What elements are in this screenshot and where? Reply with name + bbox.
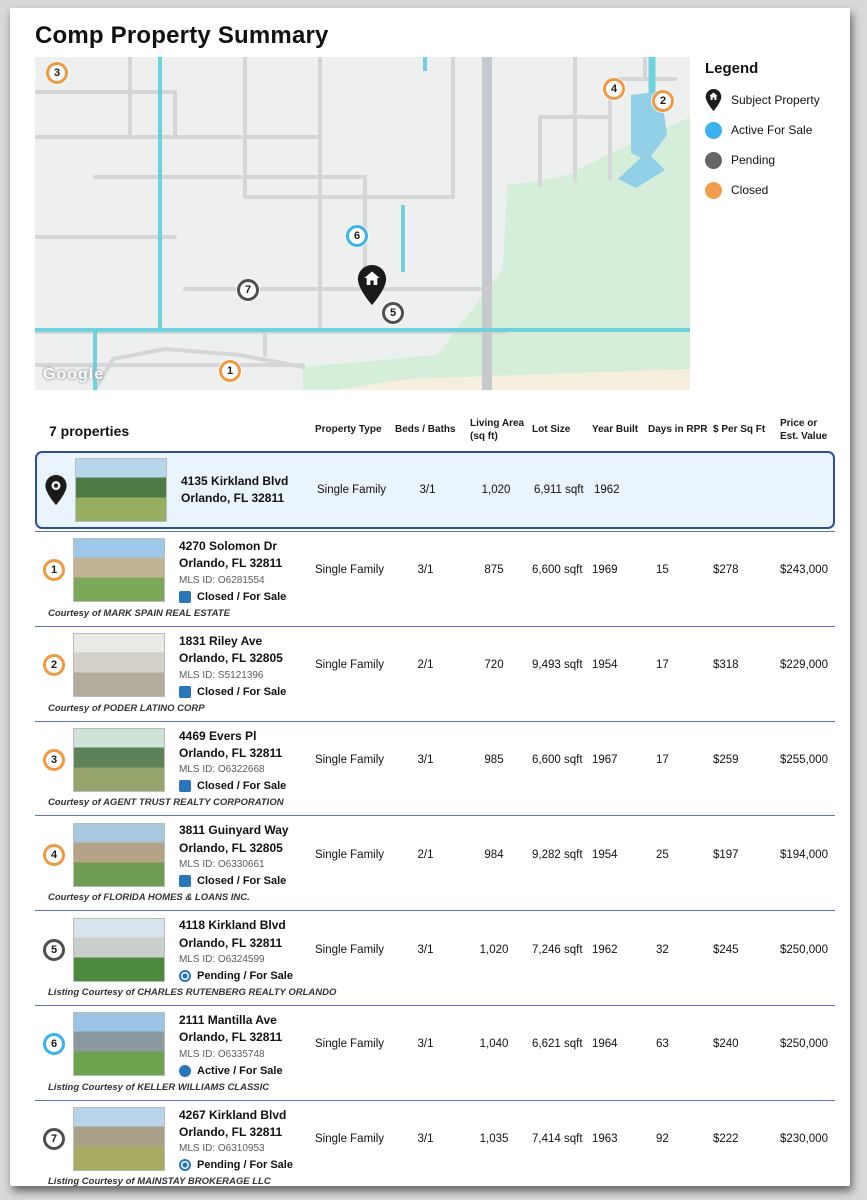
beds-baths: 3/1: [395, 1133, 470, 1145]
courtesy-line: Courtesy of FLORIDA HOMES & LOANS INC.: [35, 887, 835, 906]
courtesy-line: Listing Courtesy of KELLER WILLIAMS CLAS…: [35, 1077, 835, 1096]
mls-id: MLS ID: O6324599: [179, 952, 315, 967]
status-text: Closed / For Sale: [197, 591, 286, 603]
property-address[interactable]: 4118 Kirkland Blvd: [179, 917, 315, 934]
property-photo[interactable]: [73, 633, 165, 697]
days-in-rpr: 17: [648, 659, 713, 671]
column-header: Price orEst. Value: [780, 418, 835, 443]
beds-baths: 2/1: [395, 659, 470, 671]
year-built: 1963: [592, 1133, 648, 1145]
year-built: 1954: [592, 849, 648, 861]
price-per-sqft: $259: [713, 754, 780, 766]
courtesy-line: Courtesy of PODER LATINO CORP: [35, 698, 835, 717]
price-per-sqft: $222: [713, 1133, 780, 1145]
year-built: 1954: [592, 659, 648, 671]
column-header: Days in RPR: [648, 424, 713, 437]
days-in-rpr: 92: [648, 1133, 713, 1145]
map-marker-4[interactable]: 4: [603, 78, 625, 100]
legend-label: Pending: [731, 153, 775, 167]
property-type: Single Family: [317, 484, 397, 496]
beds-baths: 3/1: [395, 944, 470, 956]
price-per-sqft: $245: [713, 944, 780, 956]
price: $250,000: [780, 1038, 835, 1050]
year-built: 1962: [594, 484, 650, 496]
map-marker-6[interactable]: 6: [346, 225, 368, 247]
report-page: Comp Property Summary: [10, 8, 850, 1186]
price-per-sqft: $197: [713, 849, 780, 861]
property-address[interactable]: 1831 Riley Ave: [179, 633, 315, 650]
beds-baths: 3/1: [397, 484, 472, 496]
price: $250,000: [780, 944, 835, 956]
price-per-sqft: $240: [713, 1038, 780, 1050]
map-legend: Legend Subject Property Active For Sale …: [705, 60, 855, 211]
column-header: Living Area(sq ft): [470, 418, 532, 443]
living-area: 1,020: [470, 944, 532, 956]
row-marker: 1: [43, 559, 65, 581]
pending-circle-icon: [705, 152, 722, 169]
price: $229,000: [780, 659, 835, 671]
map-marker-3[interactable]: 3: [46, 62, 68, 84]
subject-property-pin-icon[interactable]: [357, 265, 387, 305]
row-marker: 3: [43, 749, 65, 771]
year-built: 1962: [592, 944, 648, 956]
property-city: Orlando, FL 32811: [179, 1029, 315, 1046]
days-in-rpr: 32: [648, 944, 713, 956]
legend-item-subject: Subject Property: [705, 91, 855, 109]
table-row[interactable]: 3 4469 Evers Pl Orlando, FL 32811 MLS ID…: [35, 721, 835, 816]
column-header: Property Type: [315, 424, 395, 437]
property-city: Orlando, FL 32811: [179, 555, 315, 572]
year-built: 1967: [592, 754, 648, 766]
property-photo[interactable]: [73, 918, 165, 982]
status-text: Closed / For Sale: [197, 875, 286, 887]
mls-id: MLS ID: O6335748: [179, 1047, 315, 1062]
legend-item-closed: Closed: [705, 181, 855, 199]
beds-baths: 3/1: [395, 1038, 470, 1050]
column-header: Lot Size: [532, 424, 592, 437]
status-icon: [179, 875, 191, 887]
legend-label: Active For Sale: [731, 123, 812, 137]
mls-id: MLS ID: O6281554: [179, 573, 315, 588]
lot-size: 6,911 sqft: [534, 484, 594, 496]
property-type: Single Family: [315, 1133, 395, 1145]
status-icon: [179, 1065, 191, 1077]
subject-pin-icon: [705, 89, 722, 111]
days-in-rpr: 15: [648, 564, 713, 576]
property-address[interactable]: 3811 Guinyard Way: [179, 822, 315, 839]
courtesy-line: Courtesy of MARK SPAIN REAL ESTATE: [35, 603, 835, 622]
living-area: 984: [470, 849, 532, 861]
status-icon: [179, 1159, 191, 1171]
lot-size: 6,600 sqft: [532, 754, 592, 766]
map-marker-5[interactable]: 5: [382, 302, 404, 324]
property-address[interactable]: 4267 Kirkland Blvd: [179, 1107, 315, 1124]
price-per-sqft: $318: [713, 659, 780, 671]
living-area: 985: [470, 754, 532, 766]
lot-size: 9,282 sqft: [532, 849, 592, 861]
price-per-sqft: $278: [713, 564, 780, 576]
lot-size: 9,493 sqft: [532, 659, 592, 671]
row-marker: 4: [43, 844, 65, 866]
property-photo[interactable]: [73, 1012, 165, 1076]
legend-item-active: Active For Sale: [705, 121, 855, 139]
property-type: Single Family: [315, 849, 395, 861]
map-marker-2[interactable]: 2: [652, 90, 674, 112]
property-type: Single Family: [315, 754, 395, 766]
google-logo: Google: [43, 366, 104, 384]
subject-property-row[interactable]: 4135 Kirkland Blvd Orlando, FL 32811 Sin…: [35, 451, 835, 529]
row-marker: 2: [43, 654, 65, 676]
column-header: $ Per Sq Ft: [713, 424, 780, 437]
property-city: Orlando, FL 32811: [179, 1124, 315, 1141]
status-text: Pending / For Sale: [197, 970, 293, 982]
property-city: Orlando, FL 32811: [179, 745, 315, 762]
property-address[interactable]: 4469 Evers Pl: [179, 728, 315, 745]
lot-size: 6,621 sqft: [532, 1038, 592, 1050]
days-in-rpr: 63: [648, 1038, 713, 1050]
price: $243,000: [780, 564, 835, 576]
map-markers-layer: 3426751: [35, 57, 690, 390]
comp-map[interactable]: 3426751 Google: [35, 57, 690, 390]
closed-circle-icon: [705, 182, 722, 199]
table-row[interactable]: 1 4270 Solomon Dr Orlando, FL 32811 MLS …: [35, 531, 835, 626]
legend-label: Subject Property: [731, 93, 820, 107]
property-count: 7 properties: [35, 423, 315, 439]
living-area: 1,040: [470, 1038, 532, 1050]
courtesy-line: Courtesy of AGENT TRUST REALTY CORPORATI…: [35, 792, 835, 811]
property-photo[interactable]: [73, 823, 165, 887]
property-city: Orlando, FL 32805: [179, 650, 315, 667]
property-city: Orlando, FL 32805: [179, 840, 315, 857]
table-row[interactable]: 5 4118 Kirkland Blvd Orlando, FL 32811 M…: [35, 910, 835, 1005]
price: $255,000: [780, 754, 835, 766]
column-header: Year Built: [592, 424, 648, 437]
year-built: 1969: [592, 564, 648, 576]
days-in-rpr: 17: [648, 754, 713, 766]
price: $194,000: [780, 849, 835, 861]
legend-title: Legend: [705, 60, 855, 77]
mls-id: MLS ID: O6322668: [179, 762, 315, 777]
map-marker-7[interactable]: 7: [237, 279, 259, 301]
property-city: Orlando, FL 32811: [181, 490, 317, 507]
property-address[interactable]: 2111 Mantilla Ave: [179, 1012, 315, 1029]
beds-baths: 3/1: [395, 754, 470, 766]
property-photo[interactable]: [73, 1107, 165, 1171]
table-row[interactable]: 4 3811 Guinyard Way Orlando, FL 32805 ML…: [35, 815, 835, 910]
property-type: Single Family: [315, 564, 395, 576]
beds-baths: 3/1: [395, 564, 470, 576]
property-photo[interactable]: [73, 728, 165, 792]
mls-id: MLS ID: O6310953: [179, 1141, 315, 1156]
price: $230,000: [780, 1133, 835, 1145]
lot-size: 7,246 sqft: [532, 944, 592, 956]
property-type: Single Family: [315, 1038, 395, 1050]
property-type: Single Family: [315, 659, 395, 671]
status-text: Active / For Sale: [197, 1065, 283, 1077]
property-photo[interactable]: [73, 538, 165, 602]
living-area: 875: [470, 564, 532, 576]
property-city: Orlando, FL 32811: [179, 935, 315, 952]
status-icon: [179, 591, 191, 603]
page-title: Comp Property Summary: [35, 22, 329, 50]
status-text: Closed / For Sale: [197, 686, 286, 698]
year-built: 1964: [592, 1038, 648, 1050]
days-in-rpr: 25: [648, 849, 713, 861]
status-text: Pending / For Sale: [197, 1159, 293, 1171]
row-marker: 7: [43, 1128, 65, 1150]
beds-baths: 2/1: [395, 849, 470, 861]
status-icon: [179, 970, 191, 982]
courtesy-line: Listing Courtesy of CHARLES RUTENBERG RE…: [35, 982, 835, 1001]
status-icon: [179, 686, 191, 698]
property-address[interactable]: 4135 Kirkland Blvd: [181, 473, 317, 490]
property-address[interactable]: 4270 Solomon Dr: [179, 538, 315, 555]
map-marker-1[interactable]: 1: [219, 360, 241, 382]
status-text: Closed / For Sale: [197, 780, 286, 792]
comp-table: 7 properties Property TypeBeds / BathsLi…: [35, 408, 835, 1194]
status-icon: [179, 780, 191, 792]
table-row[interactable]: 2 1831 Riley Ave Orlando, FL 32805 MLS I…: [35, 626, 835, 721]
property-type: Single Family: [315, 944, 395, 956]
lot-size: 6,600 sqft: [532, 564, 592, 576]
living-area: 1,035: [470, 1133, 532, 1145]
row-marker: 5: [43, 939, 65, 961]
living-area: 1,020: [472, 484, 534, 496]
table-header: 7 properties Property TypeBeds / BathsLi…: [35, 408, 835, 451]
active-circle-icon: [705, 122, 722, 139]
row-marker: 6: [43, 1033, 65, 1055]
legend-label: Closed: [731, 183, 768, 197]
lot-size: 7,414 sqft: [532, 1133, 592, 1145]
mls-id: MLS ID: S5121396: [179, 668, 315, 683]
living-area: 720: [470, 659, 532, 671]
comp-rows: 1 4270 Solomon Dr Orlando, FL 32811 MLS …: [35, 531, 835, 1194]
courtesy-line: Listing Courtesy of MAINSTAY BROKERAGE L…: [35, 1171, 835, 1190]
property-photo[interactable]: [75, 458, 167, 522]
table-row[interactable]: 6 2111 Mantilla Ave Orlando, FL 32811 ML…: [35, 1005, 835, 1100]
legend-item-pending: Pending: [705, 151, 855, 169]
table-row[interactable]: 7 4267 Kirkland Blvd Orlando, FL 32811 M…: [35, 1100, 835, 1195]
subject-pin-icon: [45, 475, 67, 505]
column-header: Beds / Baths: [395, 424, 470, 437]
mls-id: MLS ID: O6330661: [179, 857, 315, 872]
